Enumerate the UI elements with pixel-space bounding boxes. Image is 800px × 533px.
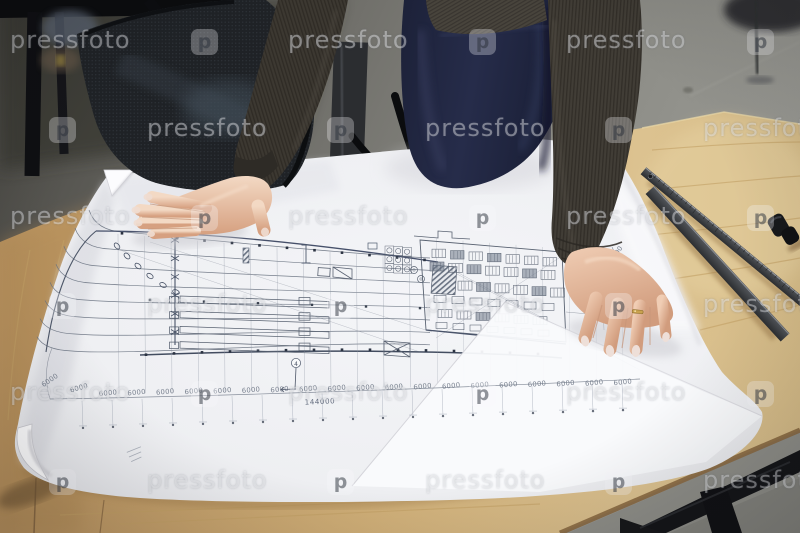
column-dot (369, 348, 372, 351)
grid-extension-dot (472, 414, 474, 416)
thumb (258, 206, 264, 230)
column-dot (341, 251, 344, 254)
grid-extension-dot (532, 412, 534, 414)
grid-extension-dot (622, 409, 624, 411)
column-dot (453, 350, 456, 353)
column-dot (201, 351, 204, 354)
column-dot (258, 244, 261, 247)
grid-extension-dot (502, 413, 504, 415)
axis-marker-number: 4 (294, 361, 298, 368)
column-dot (145, 353, 148, 356)
blurred-object (56, 55, 65, 66)
grid-extension-dot (82, 427, 84, 429)
column-dot (341, 348, 344, 351)
stock-photo-architect-blueprint: 6000600060006000600060006000600060006000… (0, 0, 800, 533)
column-dot (229, 350, 232, 353)
grid-extension-dot (292, 420, 294, 422)
grid-extension-dot (592, 410, 594, 412)
column-dot (149, 299, 151, 301)
desk-leg (25, 12, 43, 176)
column-dot (313, 349, 316, 352)
grid-extension-dot (202, 423, 204, 425)
grid-extension-dot (172, 424, 174, 426)
grid-extension-dot (562, 411, 564, 413)
column-dot (423, 259, 426, 262)
grid-extension-dot (262, 421, 264, 423)
column-dot (286, 247, 289, 250)
grid-extension-dot (112, 426, 114, 428)
grid-extension-dot (442, 415, 444, 417)
column-dot (231, 242, 234, 245)
grid-extension-dot (352, 418, 354, 420)
column-dot (425, 349, 428, 352)
column-dot (121, 232, 124, 235)
column-dot (203, 300, 205, 302)
column-dot (285, 349, 288, 352)
grid-extension-dot (382, 417, 384, 419)
grid-extension-dot (412, 416, 414, 418)
photo-scene: 6000600060006000600060006000600060006000… (0, 0, 800, 533)
gold-ring (632, 309, 643, 314)
total-dimension-label: 144000 (304, 396, 335, 406)
grid-extension-dot (142, 425, 144, 427)
grid-extension-dot (232, 422, 234, 424)
column-dot (313, 249, 316, 252)
column-dot (311, 304, 313, 306)
column-dot (419, 307, 421, 309)
column-dot (173, 352, 176, 355)
column-dot (368, 254, 371, 257)
grid-extension-dot (322, 419, 324, 421)
column-dot (257, 302, 259, 304)
column-dot (365, 305, 367, 307)
